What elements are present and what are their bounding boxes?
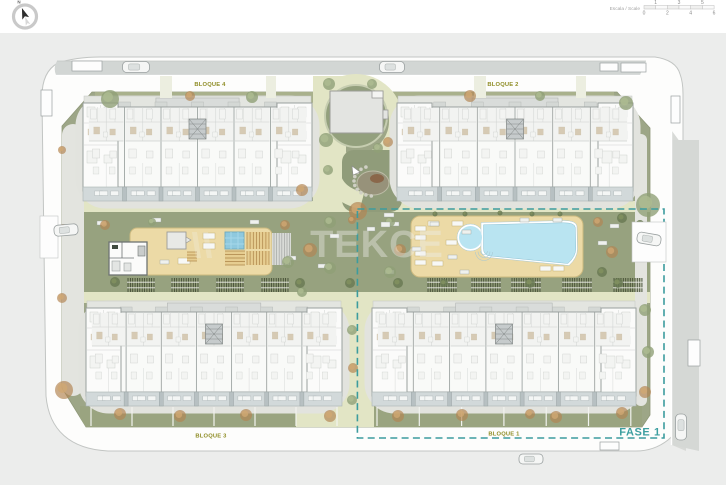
svg-text:3: 3	[678, 0, 681, 6]
svg-text:1: 1	[654, 0, 657, 6]
svg-text:BLOQUE 4: BLOQUE 4	[194, 82, 226, 88]
svg-text:5: 5	[701, 0, 704, 6]
svg-text:0: 0	[643, 11, 646, 17]
svg-text:BLOQUE 2: BLOQUE 2	[487, 82, 518, 88]
svg-text:6: 6	[713, 11, 716, 17]
svg-text:BLOQUE 3: BLOQUE 3	[195, 434, 227, 440]
svg-text:Escala / Scale: Escala / Scale	[610, 6, 641, 12]
svg-text:TEKCE: TEKCE	[310, 224, 444, 266]
svg-text:N: N	[17, 0, 20, 5]
svg-text:4: 4	[689, 11, 692, 17]
svg-text:FASE 1: FASE 1	[619, 427, 661, 439]
svg-text:BLOQUE 1: BLOQUE 1	[488, 432, 520, 438]
svg-text:2: 2	[666, 11, 669, 17]
